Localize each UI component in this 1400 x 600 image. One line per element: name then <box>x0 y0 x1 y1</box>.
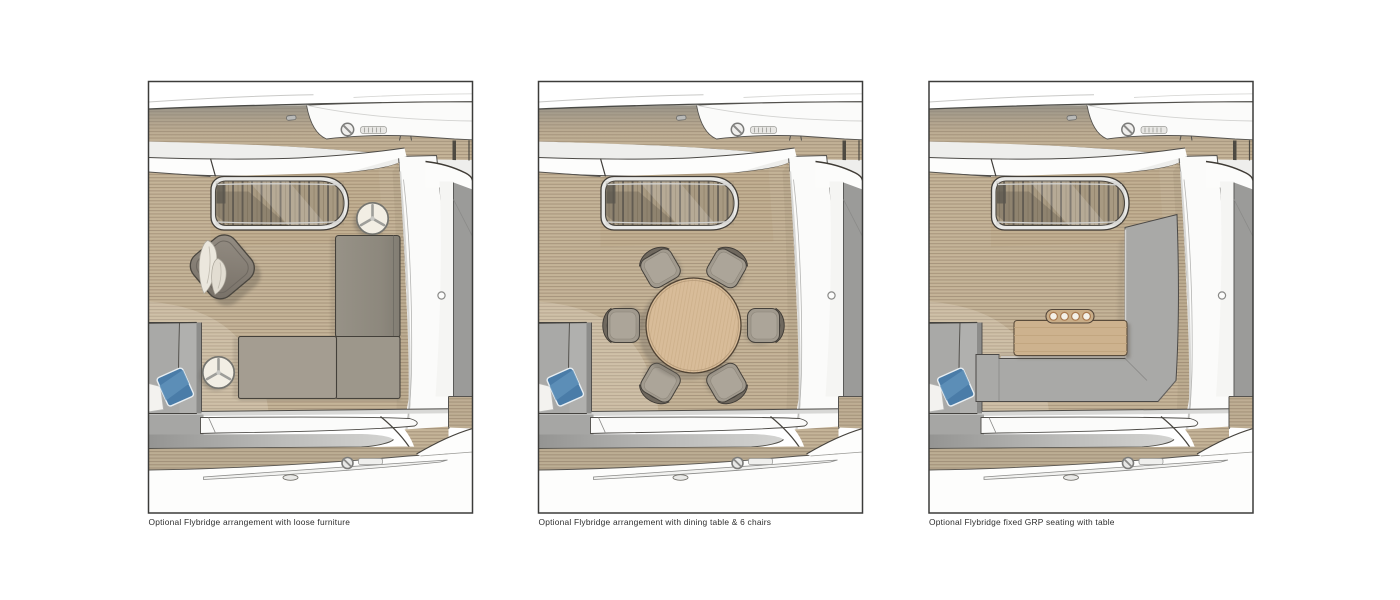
svg-text:Optional Flybridge fixed GRP s: Optional Flybridge fixed GRP seating wit… <box>929 517 1115 527</box>
svg-text:Optional Flybridge arrangement: Optional Flybridge arrangement with loos… <box>149 517 351 527</box>
svg-text:Optional Flybridge arrangement: Optional Flybridge arrangement with dini… <box>539 517 772 527</box>
